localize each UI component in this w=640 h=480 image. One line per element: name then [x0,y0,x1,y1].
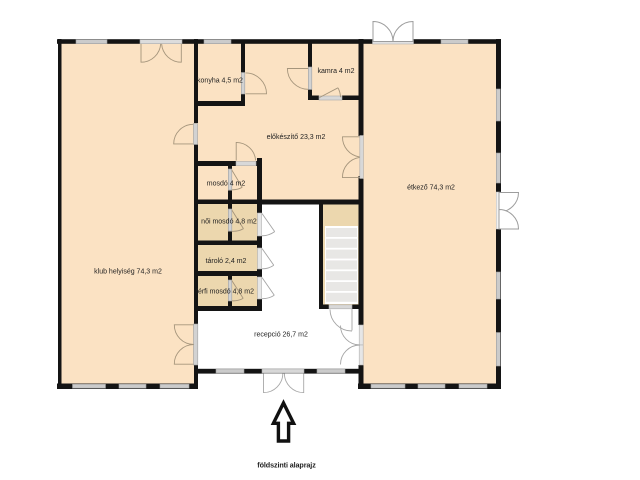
svg-text:recepció 26,7 m2: recepció 26,7 m2 [254,332,308,339]
svg-text:étkező 74,3 m2: étkező 74,3 m2 [407,185,455,192]
svg-text:előkészítő 23,3 m2: előkészítő 23,3 m2 [267,134,326,141]
svg-text:női mosdó 4,8 m2: női mosdó 4,8 m2 [201,219,257,226]
svg-text:földszinti alaprajz: földszinti alaprajz [257,461,316,470]
svg-text:klub helyiség 74,3 m2: klub helyiség 74,3 m2 [94,269,162,276]
svg-text:kamra 4 m2: kamra 4 m2 [318,68,355,75]
svg-text:konyha 4,5 m2: konyha 4,5 m2 [197,78,243,85]
svg-text:mosdó 4 m2: mosdó 4 m2 [207,181,246,188]
svg-text:tároló 2,4 m2: tároló 2,4 m2 [206,258,247,265]
svg-text:férfi mosdó 4,8 m2: férfi mosdó 4,8 m2 [196,289,254,296]
